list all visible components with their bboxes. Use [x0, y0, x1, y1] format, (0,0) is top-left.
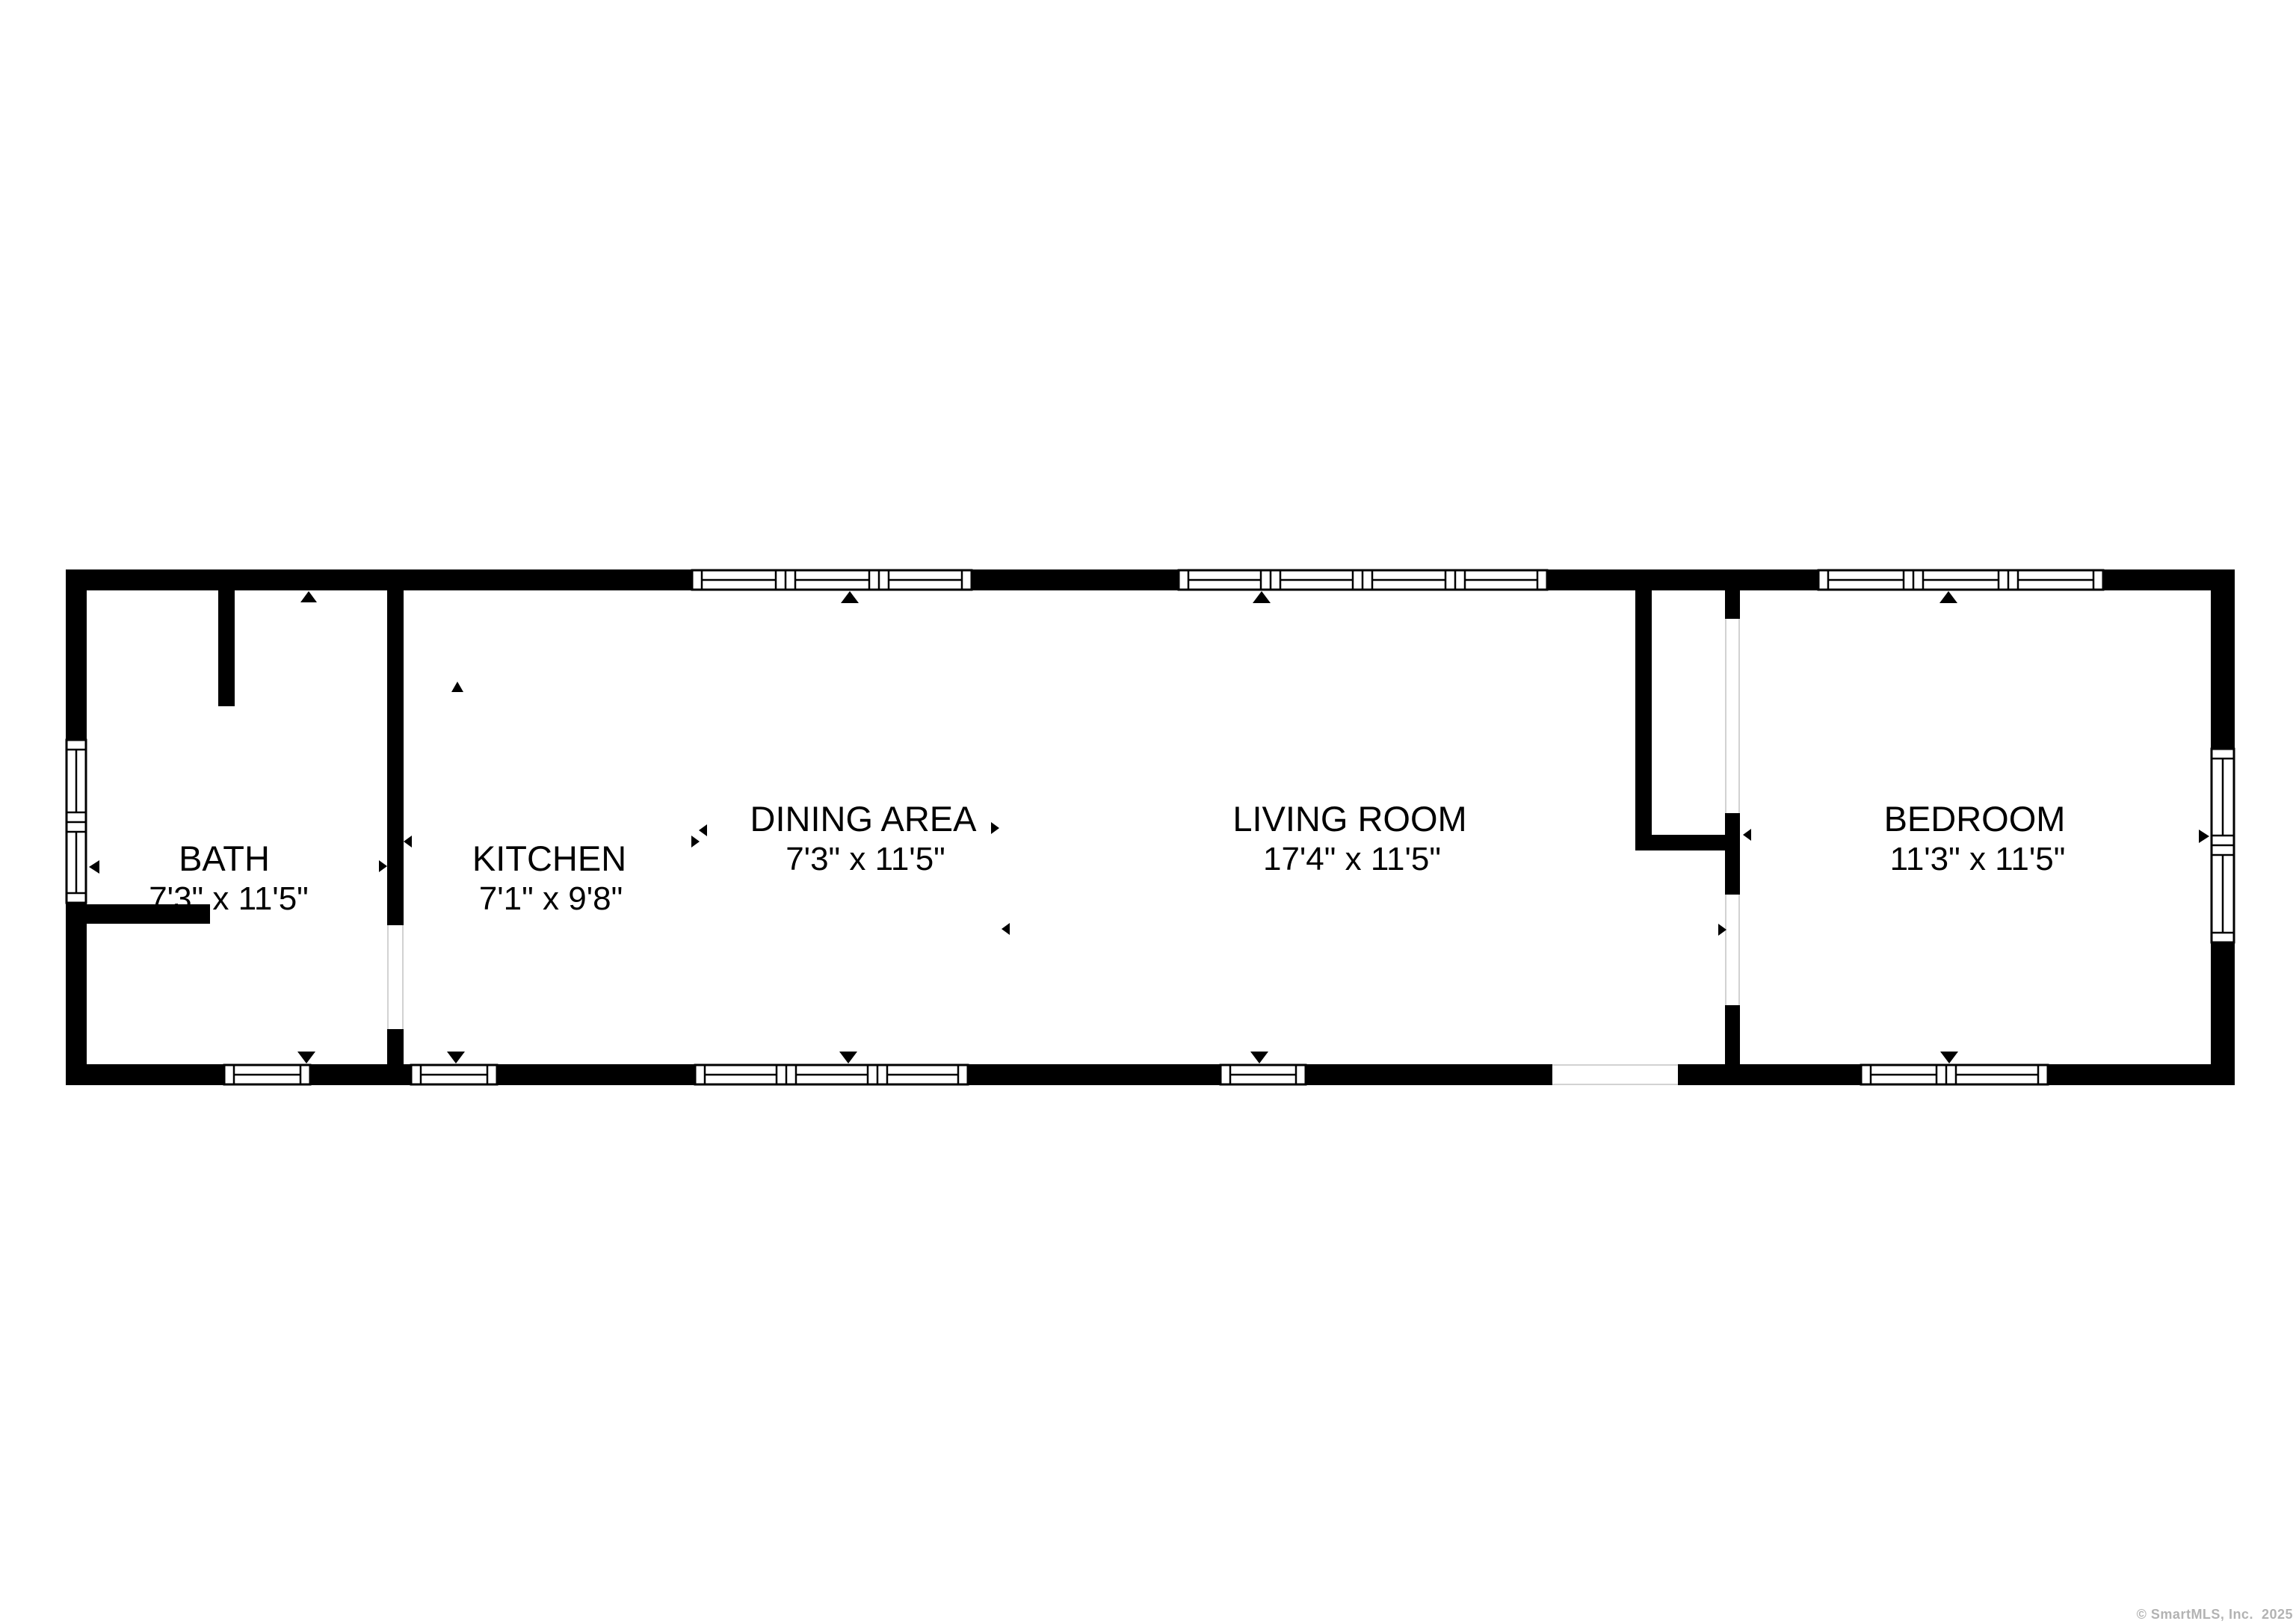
room-dims-bedroom: 11'3" x 11'5" — [1890, 841, 2066, 877]
watermark: © SmartMLS, Inc. 2025 — [2137, 1607, 2293, 1622]
room-label-kitchen: KITCHEN 7'1" x 9'8" — [472, 839, 626, 917]
wall — [387, 1029, 404, 1085]
wall — [1635, 569, 1652, 850]
room-name-dining: DINING AREA — [750, 799, 978, 839]
room-dims-kitchen: 7'1" x 9'8" — [479, 880, 623, 917]
room-dims-dining: 7'3" x 11'5" — [786, 841, 945, 877]
room-label-living: LIVING ROOM 17'4" x 11'5" — [1232, 799, 1466, 877]
wall — [1725, 813, 1740, 895]
room-name-bath: BATH — [179, 839, 270, 878]
wall — [387, 569, 404, 925]
room-dims-living: 17'4" x 11'5" — [1263, 841, 1441, 877]
wall — [1725, 1005, 1740, 1085]
wall — [1635, 835, 1740, 850]
room-name-bedroom: BEDROOM — [1884, 799, 2066, 839]
page: { "watermark": "© SmartMLS, Inc. 2025", … — [0, 0, 2296, 1624]
floor-plan: BATH 7'3" x 11'5" KITCHEN 7'1" x 9'8" DI… — [0, 0, 2296, 1624]
room-name-living: LIVING ROOM — [1232, 799, 1466, 839]
room-name-kitchen: KITCHEN — [472, 839, 626, 878]
room-label-bedroom: BEDROOM 11'3" x 11'5" — [1884, 799, 2066, 877]
wall — [218, 569, 235, 706]
room-dims-bath: 7'3" x 11'5" — [149, 880, 309, 917]
wall — [1725, 569, 1740, 619]
